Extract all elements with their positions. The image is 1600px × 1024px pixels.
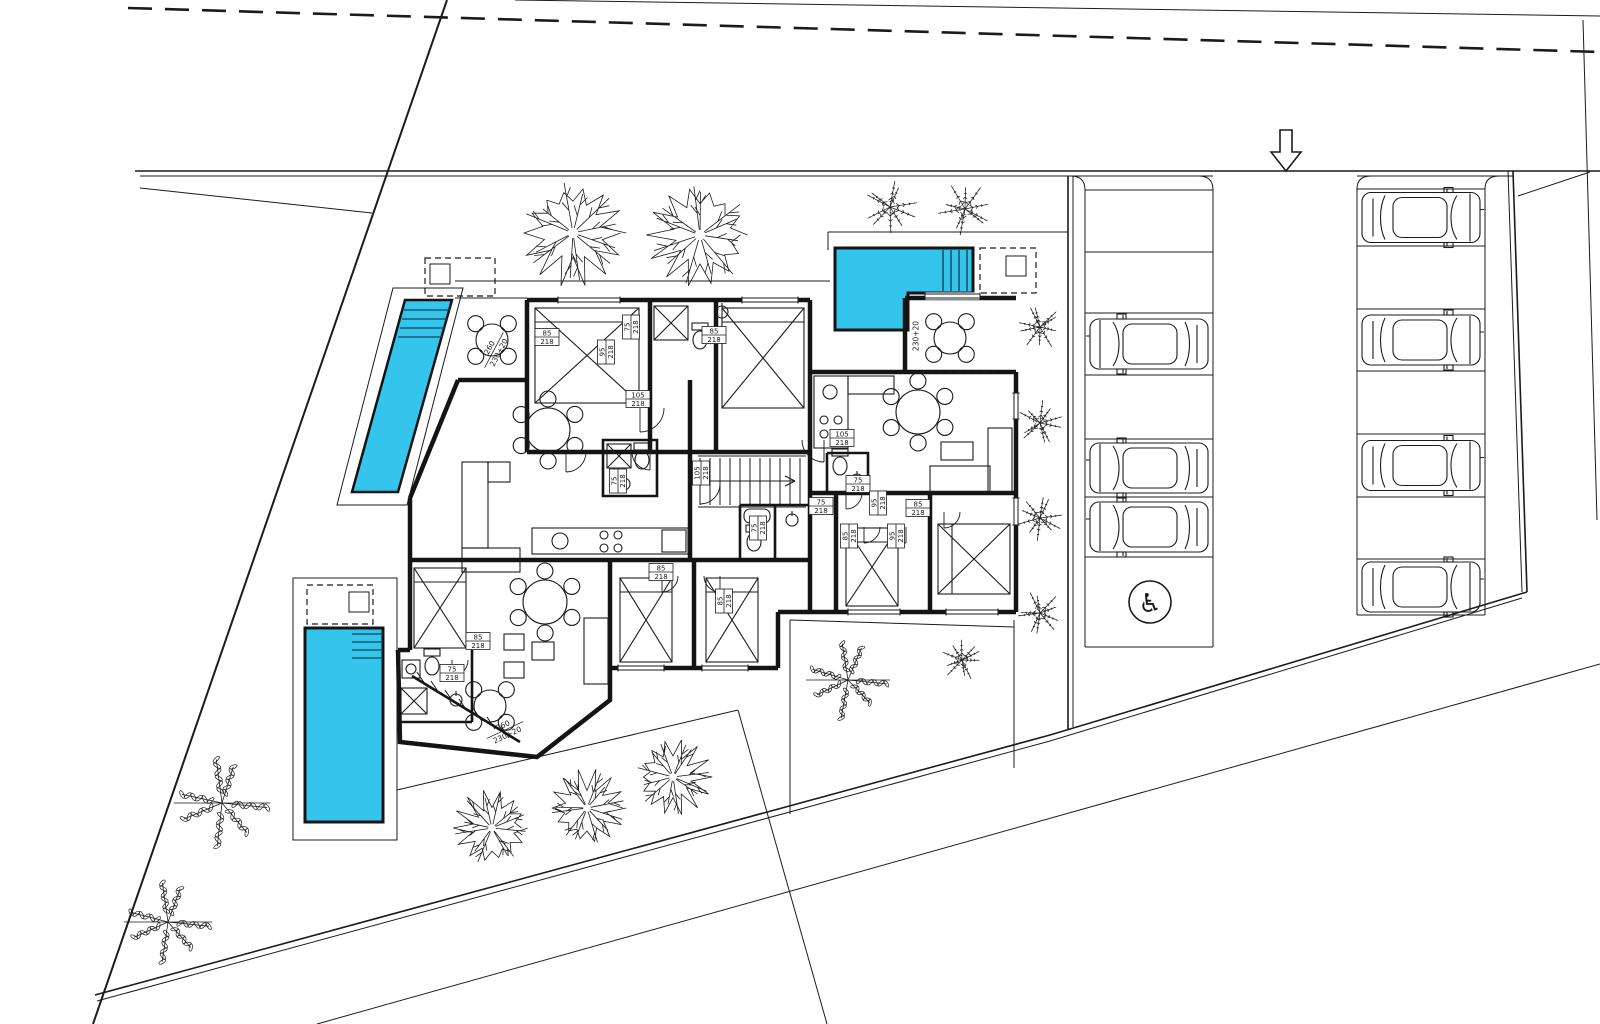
svg-text:95: 95 bbox=[870, 499, 878, 508]
door-size-tag: 95218 bbox=[598, 340, 615, 364]
svg-text:218: 218 bbox=[540, 338, 553, 346]
svg-text:218: 218 bbox=[725, 594, 733, 607]
svg-text:85: 85 bbox=[841, 532, 849, 541]
door-size-tag: 85218 bbox=[535, 329, 559, 346]
svg-text:75: 75 bbox=[750, 524, 758, 533]
svg-text:218: 218 bbox=[911, 509, 924, 517]
svg-text:105: 105 bbox=[693, 466, 701, 479]
window bbox=[925, 293, 980, 300]
pool-sw-water bbox=[305, 628, 383, 822]
svg-text:218: 218 bbox=[632, 320, 640, 333]
svg-text:85: 85 bbox=[657, 564, 666, 572]
svg-text:85: 85 bbox=[716, 597, 724, 606]
door-size-tag: 75218 bbox=[846, 476, 870, 493]
door-size-tag: 95218 bbox=[888, 524, 905, 548]
svg-text:85: 85 bbox=[474, 633, 483, 641]
svg-text:75: 75 bbox=[610, 477, 618, 486]
window bbox=[742, 297, 798, 304]
door-size-tag: 85218 bbox=[906, 500, 930, 517]
window bbox=[848, 609, 900, 616]
door-size-tag: 85218 bbox=[649, 564, 673, 581]
window bbox=[1013, 393, 1020, 419]
plan-background bbox=[0, 0, 1600, 1024]
svg-text:218: 218 bbox=[835, 439, 848, 447]
svg-text:218: 218 bbox=[654, 573, 667, 581]
window bbox=[946, 609, 998, 616]
svg-text:95: 95 bbox=[598, 348, 606, 357]
site-plan-drawing: 85218 75218 95218 85218 105218 75218 105… bbox=[0, 0, 1600, 1024]
dimension-label: 230+20 bbox=[912, 321, 921, 351]
svg-text:218: 218 bbox=[879, 496, 887, 509]
svg-text:218: 218 bbox=[814, 507, 827, 515]
svg-text:218: 218 bbox=[897, 529, 905, 542]
door-size-tag: 95218 bbox=[870, 491, 887, 515]
site-plan-canvas: 85218 75218 95218 85218 105218 75218 105… bbox=[0, 0, 1600, 1024]
svg-text:218: 218 bbox=[631, 400, 644, 408]
accessible-parking-icon: ♿ bbox=[1129, 581, 1171, 623]
svg-text:♿: ♿ bbox=[1138, 589, 1161, 619]
window bbox=[618, 665, 664, 672]
svg-text:85: 85 bbox=[543, 329, 552, 337]
svg-text:75: 75 bbox=[854, 476, 863, 484]
svg-text:218: 218 bbox=[471, 642, 484, 650]
door-size-tag: 75218 bbox=[750, 516, 767, 540]
window bbox=[558, 297, 620, 304]
svg-text:85: 85 bbox=[710, 327, 719, 335]
svg-text:218: 218 bbox=[702, 466, 710, 479]
svg-text:75: 75 bbox=[817, 498, 826, 506]
svg-text:218: 218 bbox=[850, 529, 858, 542]
svg-text:218: 218 bbox=[619, 474, 627, 487]
window bbox=[1013, 498, 1020, 525]
svg-text:105: 105 bbox=[835, 430, 848, 438]
door-size-tag: 75218 bbox=[610, 469, 627, 493]
door-size-tag: 105218 bbox=[693, 461, 710, 485]
svg-text:218: 218 bbox=[445, 674, 458, 682]
svg-text:75: 75 bbox=[448, 665, 457, 673]
door-size-tag: 75218 bbox=[809, 498, 833, 515]
svg-text:230+20: 230+20 bbox=[912, 321, 921, 351]
door-size-tag: 85218 bbox=[702, 327, 726, 344]
door-size-tag: 105218 bbox=[626, 391, 650, 408]
door-size-tag: 75218 bbox=[623, 315, 640, 339]
window bbox=[702, 665, 748, 672]
svg-text:85: 85 bbox=[914, 500, 923, 508]
svg-text:75: 75 bbox=[623, 323, 631, 332]
svg-text:105: 105 bbox=[631, 391, 644, 399]
svg-text:95: 95 bbox=[888, 532, 896, 541]
svg-text:218: 218 bbox=[759, 521, 767, 534]
door-size-tag: 105218 bbox=[830, 430, 854, 447]
door-size-tag: 85218 bbox=[716, 589, 733, 613]
door-size-tag: 85218 bbox=[466, 633, 490, 650]
svg-text:218: 218 bbox=[851, 485, 864, 493]
door-size-tag: 85218 bbox=[841, 524, 858, 548]
svg-text:218: 218 bbox=[607, 345, 615, 358]
door-size-tag: 75218 bbox=[440, 665, 464, 682]
svg-text:218: 218 bbox=[707, 336, 720, 344]
